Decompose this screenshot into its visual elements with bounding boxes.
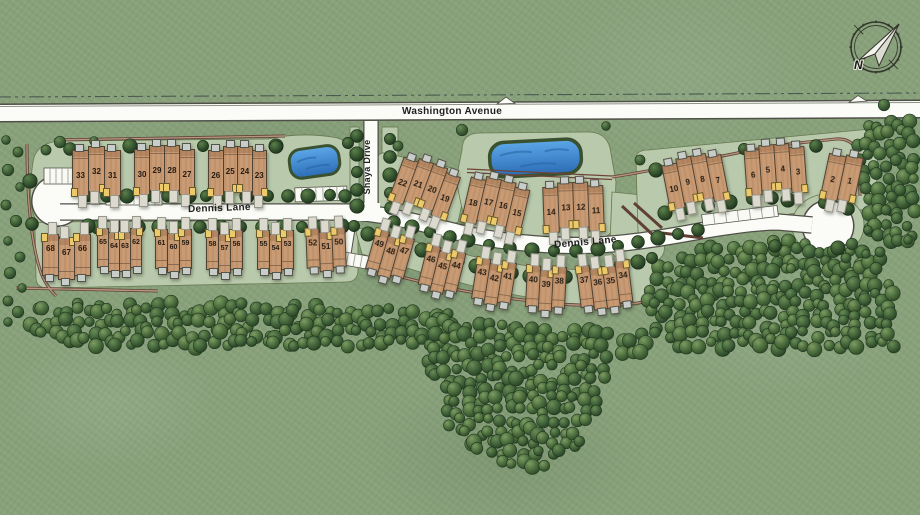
- lot-number: 40: [527, 276, 539, 285]
- deck-patio: [122, 270, 131, 278]
- lot-number: 27: [180, 171, 194, 179]
- lot-number: 6: [746, 171, 761, 180]
- lot-number: 65: [98, 239, 108, 246]
- deck-patio: [575, 176, 584, 184]
- lot-number: 13: [559, 204, 573, 212]
- driveway: [80, 222, 89, 235]
- lot-unit-53[interactable]: 53: [281, 230, 294, 270]
- deck-patio: [761, 138, 771, 147]
- driveway: [48, 222, 57, 235]
- deck-patio: [499, 301, 509, 310]
- building-group: 525150: [305, 227, 348, 268]
- lot-unit-62[interactable]: 62: [130, 228, 142, 268]
- lot-number: 15: [509, 208, 524, 219]
- deck-patio: [366, 267, 377, 277]
- lot-number: 55: [258, 241, 269, 248]
- driveway: [577, 253, 588, 267]
- driveway: [334, 215, 343, 228]
- deck-patio: [554, 306, 563, 314]
- deck-patio: [233, 268, 242, 276]
- lot-number: 35: [604, 277, 617, 286]
- building-group: 616059: [155, 229, 194, 269]
- deck-patio: [158, 267, 167, 275]
- deck-patio: [473, 297, 483, 306]
- shaya-drive-label: Shaya Drive: [362, 130, 374, 204]
- lot-number: 38: [553, 278, 565, 287]
- lot-unit-67[interactable]: 67: [58, 238, 75, 280]
- driveway: [752, 194, 762, 208]
- porch-marker: [41, 233, 48, 242]
- deck-patio: [45, 274, 54, 282]
- driveway: [389, 200, 402, 215]
- deck-patio: [517, 181, 528, 191]
- deck-patio: [444, 289, 455, 299]
- lot-unit-3[interactable]: 3: [788, 146, 807, 193]
- lot-number: 8: [695, 175, 710, 186]
- lot-unit-27[interactable]: 27: [179, 149, 195, 195]
- driveway: [254, 195, 263, 208]
- deck-patio: [560, 176, 569, 184]
- driveway: [504, 231, 516, 246]
- driveway: [208, 218, 217, 231]
- lot-number: 3: [791, 168, 806, 177]
- driveway: [139, 194, 148, 207]
- lot-number: 51: [320, 243, 332, 251]
- building-group: 21: [820, 153, 865, 205]
- deck-patio: [489, 171, 500, 181]
- driveway: [763, 189, 773, 203]
- lot-number: 53: [282, 241, 293, 248]
- deck-patio: [540, 310, 549, 318]
- lot-groups-layer: 3332313029282726252423222120191817161514…: [0, 0, 920, 515]
- porch-marker: [189, 187, 196, 196]
- lot-unit-59[interactable]: 59: [179, 229, 192, 269]
- lot-number: 61: [156, 240, 167, 247]
- driveway: [78, 195, 87, 208]
- lot-unit-23[interactable]: 23: [252, 150, 268, 196]
- deck-patio: [832, 148, 842, 158]
- lot-number: 28: [165, 167, 179, 175]
- deck-patio: [528, 305, 537, 313]
- deck-patio: [260, 268, 269, 276]
- lot-unit-30[interactable]: 30: [134, 149, 150, 195]
- lot-number: 26: [209, 172, 223, 180]
- driveway: [590, 256, 601, 270]
- lot-number: 44: [449, 261, 463, 272]
- porch-marker: [514, 226, 523, 236]
- deck-patio: [77, 274, 86, 282]
- lot-unit-24[interactable]: 24: [237, 146, 253, 192]
- driveway: [781, 188, 791, 202]
- deck-patio: [473, 171, 484, 181]
- lot-unit-31[interactable]: 31: [104, 150, 121, 196]
- deck-patio: [211, 144, 220, 152]
- deck-patio: [707, 149, 717, 159]
- lot-unit-11[interactable]: 11: [587, 185, 605, 232]
- driveway: [232, 218, 241, 231]
- driveway: [530, 253, 540, 266]
- deck-patio: [91, 140, 100, 148]
- driveway: [675, 207, 686, 221]
- deck-patio: [435, 158, 446, 169]
- lot-number: 4: [776, 165, 791, 174]
- deck-patio: [622, 300, 632, 309]
- porch-marker: [73, 233, 80, 242]
- lot-number: 7: [711, 176, 726, 187]
- deck-patio: [431, 290, 442, 300]
- lot-unit-38[interactable]: 38: [551, 266, 567, 309]
- driveway: [379, 217, 391, 232]
- building-group: 30292827: [134, 149, 198, 195]
- driveway: [463, 221, 475, 236]
- deck-patio: [240, 140, 249, 148]
- deck-patio: [61, 278, 70, 286]
- driveway: [542, 258, 552, 271]
- driveway: [320, 220, 329, 233]
- lot-number: 60: [168, 244, 179, 251]
- lot-number: 58: [207, 241, 218, 248]
- driveway: [220, 222, 229, 235]
- porch-marker: [71, 188, 78, 197]
- deck-patio: [590, 179, 599, 187]
- deck-patio: [504, 174, 515, 184]
- driveway: [132, 216, 141, 229]
- driveway: [556, 254, 566, 267]
- driveway: [716, 199, 727, 213]
- lot-number: 33: [73, 172, 88, 180]
- lot-unit-32[interactable]: 32: [88, 146, 105, 192]
- building-group: 494847: [365, 228, 417, 280]
- deck-patio: [284, 268, 293, 276]
- deck-patio: [584, 305, 594, 314]
- lot-unit-28[interactable]: 28: [164, 145, 180, 191]
- deck-patio: [421, 153, 432, 164]
- driveway: [271, 222, 280, 235]
- building-group: 434241: [471, 257, 519, 305]
- lot-number: 24: [238, 168, 252, 176]
- lot-number: 23: [253, 172, 267, 180]
- lot-number: 9: [680, 178, 695, 189]
- deck-patio: [545, 181, 554, 189]
- driveway: [181, 217, 190, 230]
- driveway: [98, 216, 107, 229]
- porch-marker: [439, 211, 449, 222]
- lot-number: 14: [544, 209, 558, 217]
- lot-number: 36: [591, 279, 604, 288]
- driveway: [110, 195, 119, 208]
- driveway: [169, 221, 178, 234]
- driveway: [480, 246, 491, 260]
- lot-number: 57: [219, 245, 230, 252]
- building-group: 26252423: [208, 150, 270, 196]
- building-group: 65646362: [97, 228, 145, 268]
- lot-number: 2: [824, 175, 841, 186]
- driveway: [283, 218, 292, 231]
- building-group: 686766: [42, 234, 93, 276]
- deck-patio: [791, 140, 801, 149]
- lot-number: 5: [761, 166, 776, 175]
- deck-patio: [137, 143, 146, 151]
- driveway: [169, 190, 178, 203]
- driveway: [506, 250, 517, 264]
- lot-number: 52: [307, 239, 319, 247]
- deck-patio: [226, 140, 235, 148]
- driveway: [60, 226, 69, 239]
- deck-patio: [152, 139, 161, 147]
- lot-number: 41: [501, 272, 514, 282]
- deck-patio: [597, 307, 607, 316]
- driveway: [836, 199, 848, 214]
- lot-number: 56: [231, 241, 242, 248]
- deck-patio: [485, 303, 495, 312]
- driveway: [308, 216, 317, 229]
- building-group: 22212019: [388, 156, 464, 221]
- deck-patio: [849, 149, 859, 159]
- building-group: 464544: [418, 244, 469, 295]
- lot-number: 32: [89, 168, 104, 176]
- deck-patio: [336, 265, 345, 273]
- deck-patio: [406, 152, 417, 163]
- lot-number: 37: [578, 276, 591, 285]
- lot-number: 25: [224, 168, 238, 176]
- deck-patio: [133, 266, 142, 274]
- building-group: 585756: [206, 230, 245, 270]
- building-group: 6543: [743, 146, 810, 196]
- deck-patio: [323, 270, 332, 278]
- lot-number: 30: [135, 171, 149, 179]
- building-group: 555453: [257, 230, 296, 270]
- deck-patio: [167, 139, 176, 147]
- lot-number: 59: [180, 240, 191, 247]
- lot-unit-56[interactable]: 56: [230, 230, 243, 270]
- driveway: [686, 201, 697, 215]
- driveway: [456, 239, 468, 254]
- lot-number: 50: [333, 238, 345, 246]
- lot-unit-66[interactable]: 66: [74, 234, 91, 276]
- deck-patio: [448, 167, 459, 178]
- driveway: [615, 249, 626, 263]
- lot-number: 68: [43, 245, 58, 253]
- compass-north-icon: N: [843, 13, 909, 79]
- building-group: 18171615: [461, 176, 534, 235]
- deck-patio: [776, 137, 786, 146]
- lot-number: 54: [270, 245, 281, 252]
- driveway: [603, 254, 614, 268]
- deck-patio: [746, 143, 756, 152]
- site-plan-map: 3332313029282726252423222120191817161514…: [0, 0, 920, 515]
- lot-number: 34: [617, 272, 630, 281]
- lot-number: 11: [589, 207, 603, 215]
- driveway: [120, 220, 129, 233]
- deck-patio: [419, 283, 430, 293]
- deck-patio: [310, 266, 319, 274]
- lot-number: 1: [841, 176, 858, 187]
- building-group: 10987: [661, 153, 733, 210]
- washington-avenue-label: Washington Avenue: [402, 106, 502, 117]
- lot-unit-33[interactable]: 33: [72, 150, 89, 196]
- deck-patio: [692, 148, 702, 158]
- lot-number: 62: [131, 239, 141, 246]
- deck-patio: [182, 267, 191, 275]
- driveway: [259, 218, 268, 231]
- building-group: 14131211: [542, 185, 608, 233]
- lot-number: 12: [574, 204, 588, 212]
- driveway: [428, 215, 441, 230]
- deck-patio: [663, 157, 673, 167]
- porch-marker: [848, 194, 857, 204]
- deck-patio: [221, 272, 230, 280]
- driveway: [404, 224, 416, 239]
- lot-unit-68[interactable]: 68: [42, 234, 59, 276]
- deck-patio: [610, 306, 620, 315]
- lot-number: 64: [109, 243, 119, 250]
- deck-patio: [272, 272, 281, 280]
- deck-patio: [391, 274, 402, 284]
- deck-patio: [677, 151, 687, 161]
- driveway: [493, 224, 505, 239]
- deck-patio: [378, 275, 389, 285]
- driveway: [151, 190, 160, 203]
- deck-patio: [255, 144, 264, 152]
- deck-patio: [75, 144, 84, 152]
- building-group: 37363534: [576, 260, 637, 309]
- porch-marker: [103, 188, 110, 197]
- building-group: 403938: [525, 265, 569, 309]
- dennis-lane-west-label: Dennis Lane: [188, 202, 251, 215]
- deck-patio: [182, 143, 191, 151]
- lot-number: 67: [59, 249, 74, 257]
- lot-number: 29: [150, 167, 164, 175]
- lot-unit-50[interactable]: 50: [331, 227, 346, 267]
- deck-patio: [209, 268, 218, 276]
- driveway: [157, 217, 166, 230]
- lot-number: 31: [105, 172, 120, 180]
- driveway: [824, 198, 836, 213]
- compass-n-letter: N: [854, 58, 863, 72]
- lot-number: 47: [397, 246, 411, 257]
- building-group: 333231: [72, 150, 123, 196]
- driveway: [475, 220, 487, 235]
- driveway: [793, 191, 803, 205]
- lot-number: 19: [437, 193, 453, 205]
- deck-patio: [107, 144, 116, 152]
- deck-patio: [170, 271, 179, 279]
- lot-number: 66: [75, 245, 90, 253]
- lot-number: 63: [120, 243, 130, 250]
- driveway: [430, 233, 442, 248]
- lot-number: 10: [666, 184, 681, 195]
- lot-unit-26[interactable]: 26: [208, 150, 224, 196]
- driveway: [90, 191, 99, 204]
- lot-number: 39: [540, 281, 552, 290]
